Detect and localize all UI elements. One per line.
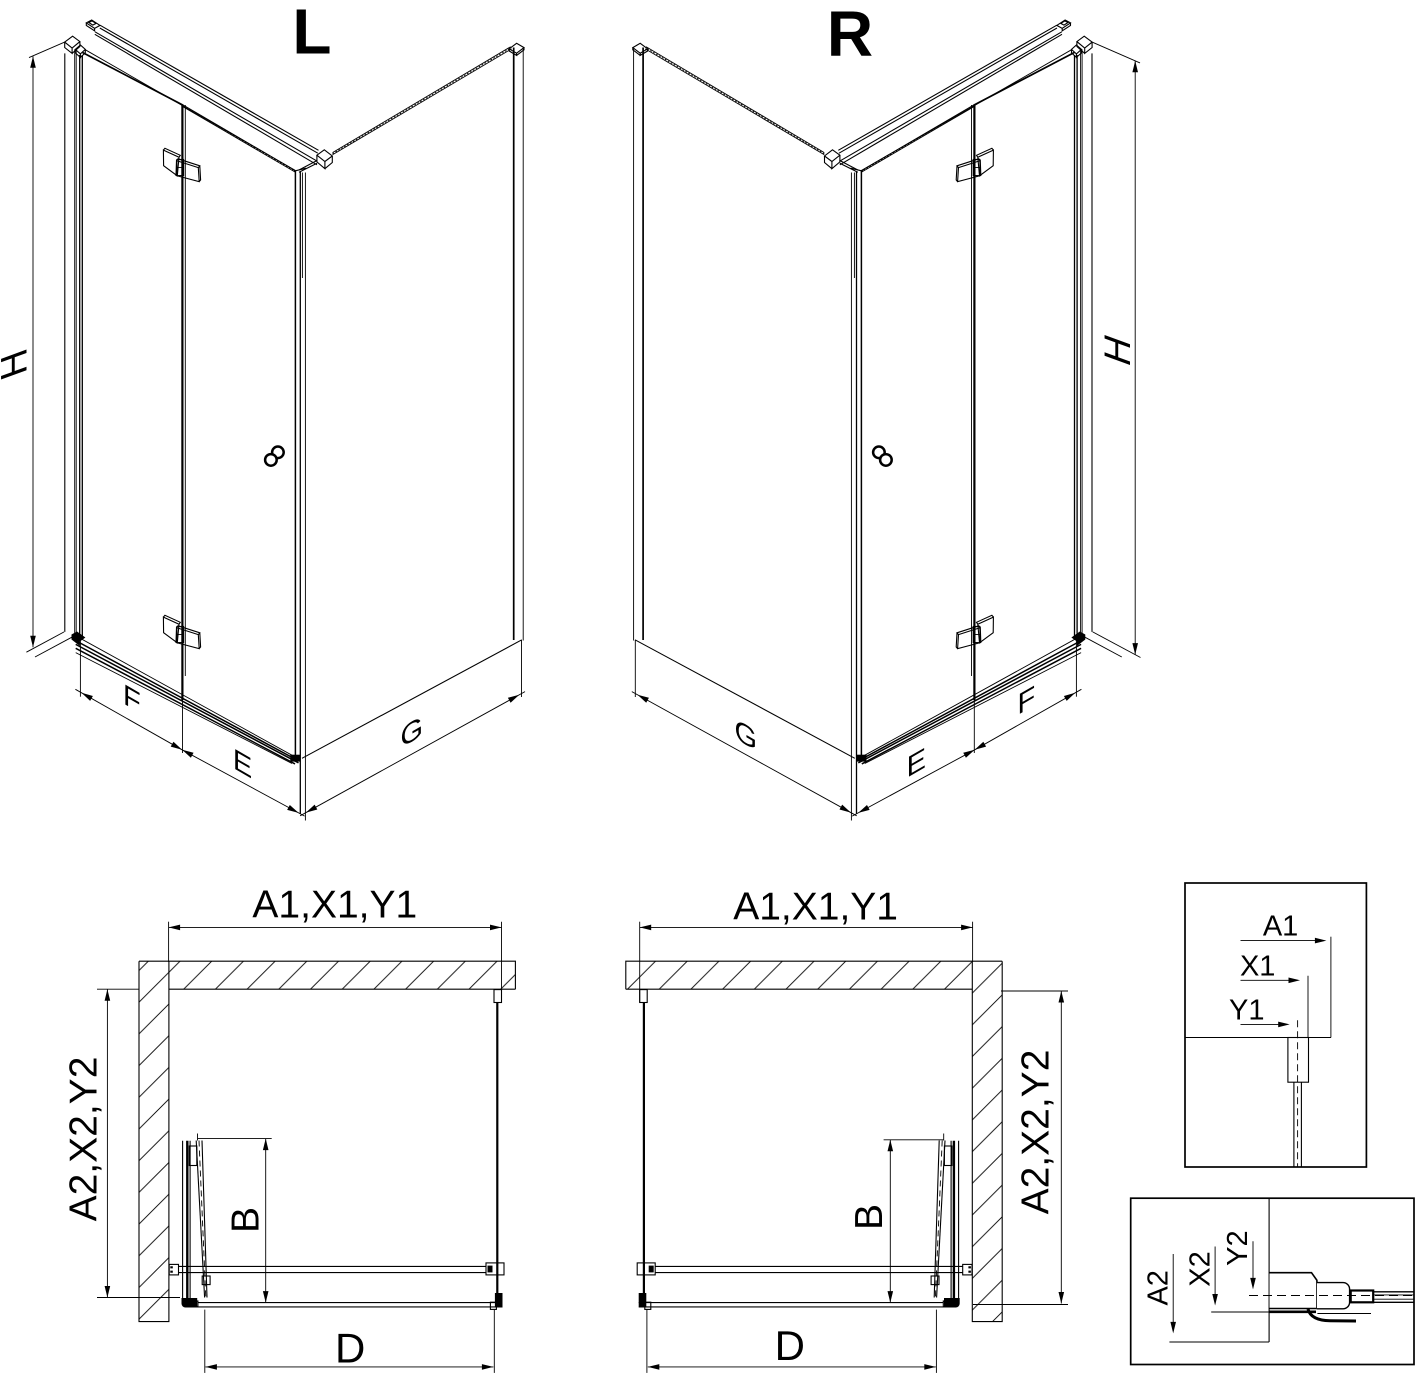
svg-text:A2,X2,Y2: A2,X2,Y2	[1015, 1050, 1058, 1215]
svg-text:B: B	[225, 1207, 268, 1233]
svg-text:A2,X2,Y2: A2,X2,Y2	[63, 1057, 106, 1222]
svg-text:X2: X2	[1184, 1251, 1216, 1286]
svg-text:Y1: Y1	[1229, 995, 1264, 1027]
svg-text:L: L	[292, 0, 331, 68]
svg-text:A1: A1	[1263, 911, 1298, 943]
svg-text:A2: A2	[1143, 1270, 1175, 1305]
svg-text:Y2: Y2	[1222, 1230, 1254, 1265]
svg-text:A1,X1,Y1: A1,X1,Y1	[733, 886, 898, 929]
svg-text:R: R	[827, 0, 873, 70]
svg-text:B: B	[848, 1204, 891, 1230]
svg-text:A1,X1,Y1: A1,X1,Y1	[252, 884, 417, 927]
svg-text:X1: X1	[1240, 951, 1275, 983]
svg-text:D: D	[335, 1324, 365, 1371]
svg-text:D: D	[775, 1322, 805, 1369]
